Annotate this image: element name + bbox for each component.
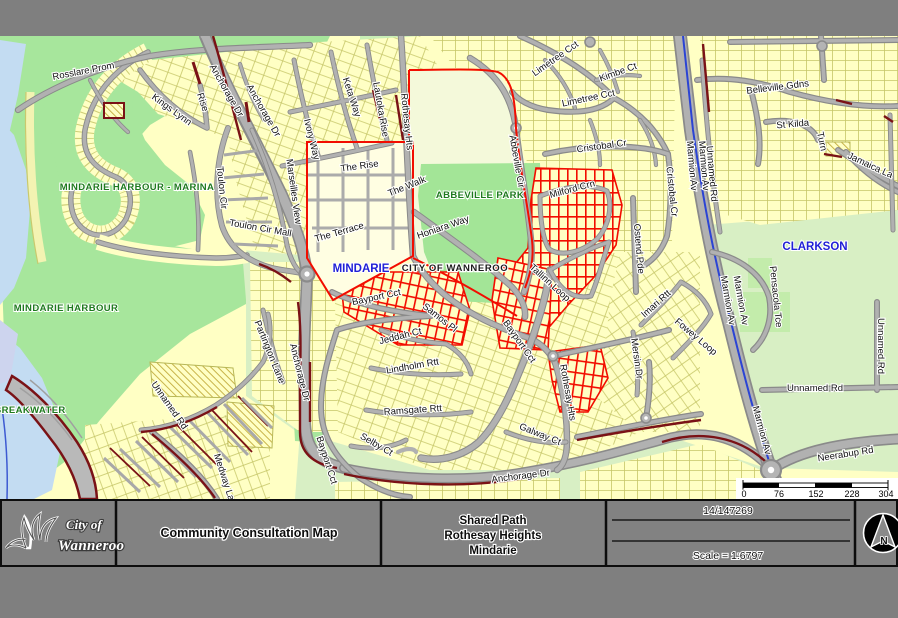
svg-text:CLARKSON: CLARKSON	[782, 241, 847, 253]
svg-text:Scale = 1:6797: Scale = 1:6797	[693, 550, 764, 562]
svg-text:228: 228	[844, 489, 859, 499]
svg-text:Wanneroo: Wanneroo	[58, 538, 124, 554]
svg-text:Mindarie: Mindarie	[469, 545, 516, 557]
svg-text:304: 304	[878, 489, 893, 499]
svg-text:0: 0	[741, 489, 746, 499]
svg-text:Unnamed Rd: Unnamed Rd	[787, 383, 843, 394]
svg-text:Community Consultation Map: Community Consultation Map	[160, 526, 337, 540]
svg-text:Unnamed Rd: Unnamed Rd	[875, 318, 886, 374]
svg-text:N: N	[880, 536, 887, 547]
svg-text:152: 152	[808, 489, 823, 499]
svg-text:MINDARIE HARBOUR: MINDARIE HARBOUR	[14, 303, 119, 314]
svg-text:Shared Path: Shared Path	[459, 515, 526, 527]
svg-text:14/147269: 14/147269	[703, 505, 753, 517]
svg-text:MINDARIE HARBOUR - MARINA: MINDARIE HARBOUR - MARINA	[60, 182, 215, 193]
svg-text:Rothesay Heights: Rothesay Heights	[444, 530, 541, 542]
svg-text:City of: City of	[66, 517, 103, 532]
svg-text:ABBEVILLE PARK: ABBEVILLE PARK	[436, 190, 524, 201]
svg-text:76: 76	[774, 489, 784, 499]
svg-text:MINDARIE: MINDARIE	[333, 263, 390, 275]
svg-text:BREAKWATER: BREAKWATER	[0, 405, 66, 416]
svg-text:CITY OF WANNEROO: CITY OF WANNEROO	[402, 263, 509, 274]
